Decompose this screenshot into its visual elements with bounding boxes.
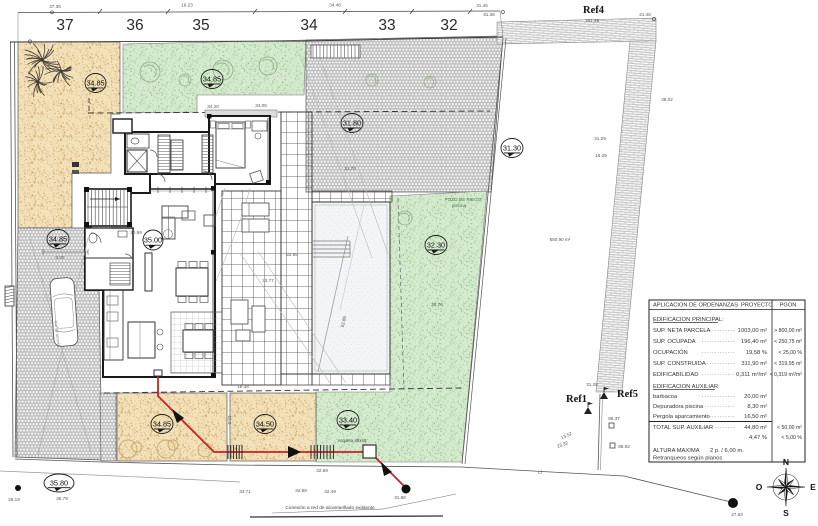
svg-text:31.36: 31.36 — [483, 12, 495, 17]
svg-text:38.02: 38.02 — [661, 97, 673, 102]
svg-text:Ref4: Ref4 — [583, 5, 605, 16]
svg-text:Arqueta 40x40: Arqueta 40x40 — [338, 438, 367, 443]
svg-text:piscina: piscina — [452, 203, 467, 208]
svg-text:SUP. CONSTRUIDA: SUP. CONSTRUIDA — [653, 361, 706, 367]
svg-text:35.79: 35.79 — [56, 496, 68, 501]
svg-text:33.95: 33.95 — [286, 252, 298, 257]
svg-text:31.80: 31.80 — [343, 119, 361, 128]
svg-text:< 25,00 %: < 25,00 % — [778, 350, 802, 356]
svg-text:32: 32 — [440, 17, 457, 34]
svg-text:O: O — [756, 482, 763, 492]
svg-text:< 5,00 %: < 5,00 % — [781, 435, 802, 441]
svg-text:44,80 m²: 44,80 m² — [744, 425, 767, 431]
svg-text:> 800,00 m²: > 800,00 m² — [774, 328, 802, 334]
svg-text:89.37: 89.37 — [608, 416, 620, 421]
svg-text:22.5: 22.5 — [227, 416, 232, 425]
svg-text:161.46: 161.46 — [585, 18, 599, 23]
svg-text:N: N — [783, 457, 789, 467]
svg-text:16,50 m²: 16,50 m² — [744, 414, 767, 420]
svg-text:< 0,319 m²/m²: < 0,319 m²/m² — [770, 372, 803, 378]
svg-text:31.45: 31.45 — [476, 3, 488, 8]
svg-text:37.36: 37.36 — [49, 4, 61, 9]
svg-text:32.98: 32.98 — [295, 488, 307, 493]
svg-text:EDIFICABILIDAD: EDIFICABILIDAD — [653, 372, 698, 378]
svg-text:8,30 m²: 8,30 m² — [747, 404, 767, 410]
svg-text:0,311 m²/m²: 0,311 m²/m² — [736, 372, 767, 378]
svg-text:1003,00 m²: 1003,00 m² — [738, 328, 767, 334]
svg-text:16.29: 16.29 — [595, 153, 607, 158]
svg-text:35.80: 35.80 — [50, 479, 68, 488]
svg-text:37: 37 — [56, 17, 73, 34]
svg-text:Retranqueos según planos: Retranqueos según planos — [653, 456, 722, 462]
svg-text:ALTURA MAXIMA: ALTURA MAXIMA — [653, 448, 700, 454]
svg-text:Pergola aparcamiento: Pergola aparcamiento — [653, 414, 710, 420]
svg-text:E: E — [810, 482, 816, 492]
svg-text:18.38: 18.38 — [237, 384, 249, 389]
svg-text:33.77: 33.77 — [262, 278, 274, 283]
svg-text:Ref5: Ref5 — [617, 389, 638, 400]
svg-text:34.05: 34.05 — [255, 103, 267, 108]
svg-text:TOTAL SUP. AUXILIAR: TOTAL SUP. AUXILIAR — [653, 425, 713, 431]
svg-text:32.69: 32.69 — [316, 468, 328, 473]
svg-text:APLICACION DE ORDENANZAS: APLICACION DE ORDENANZAS — [653, 303, 738, 309]
svg-text:OCUPACIÓN: OCUPACIÓN — [653, 349, 688, 356]
svg-text:196,40 m²: 196,40 m² — [741, 339, 767, 345]
svg-text:33.71: 33.71 — [239, 489, 251, 494]
svg-text:Ref1: Ref1 — [566, 394, 587, 405]
svg-text:S: S — [783, 508, 789, 518]
svg-text:SUP. OCUPADA: SUP. OCUPADA — [653, 339, 696, 345]
svg-text:20,00 m²: 20,00 m² — [744, 394, 767, 400]
svg-text:barbacoa: barbacoa — [653, 394, 678, 400]
svg-text:< 50,00 m²: < 50,00 m² — [777, 425, 802, 431]
svg-text:33.40: 33.40 — [339, 416, 357, 425]
svg-text:< 319,95 m²: < 319,95 m² — [774, 361, 802, 367]
svg-text:34.50: 34.50 — [256, 420, 274, 429]
svg-text:34: 34 — [300, 17, 318, 34]
svg-text:32.49: 32.49 — [324, 489, 336, 494]
svg-text:6.00: 6.00 — [56, 255, 65, 260]
svg-text:31.29: 31.29 — [594, 136, 606, 141]
svg-text:34.85: 34.85 — [153, 420, 171, 429]
svg-text:19,58 %: 19,58 % — [746, 350, 767, 356]
svg-text:Depuradora piscina: Depuradora piscina — [653, 404, 704, 410]
svg-text:21.48: 21.48 — [639, 12, 651, 17]
svg-text:550.90 m²: 550.90 m² — [550, 237, 571, 242]
svg-text:35: 35 — [192, 17, 209, 34]
svg-text:PGON: PGON — [780, 303, 797, 309]
svg-text:EDIFICACION AUXILIAR:: EDIFICACION AUXILIAR: — [653, 384, 720, 390]
svg-text:< 250,75 m²: < 250,75 m² — [774, 339, 802, 345]
svg-text:16.23: 16.23 — [181, 3, 193, 8]
svg-text:26.19: 26.19 — [8, 497, 20, 502]
svg-text:36: 36 — [126, 17, 143, 34]
svg-text:Conexión a red de alcantarilla: Conexión a red de alcantarillado existen… — [285, 505, 375, 511]
svg-text:SUP. NETA PARCELA: SUP. NETA PARCELA — [653, 328, 710, 334]
svg-text:311,90 m²: 311,90 m² — [741, 361, 767, 367]
svg-text:34.85: 34.85 — [203, 75, 221, 84]
svg-text:34.48: 34.48 — [329, 3, 341, 8]
svg-text:27.63: 27.63 — [731, 512, 743, 517]
svg-text:33: 33 — [378, 17, 395, 34]
svg-text:34.76: 34.76 — [431, 302, 443, 307]
svg-text:34.85: 34.85 — [86, 79, 104, 88]
svg-text:31.88: 31.88 — [394, 495, 406, 500]
svg-text:86.92: 86.92 — [618, 444, 630, 449]
svg-text:35.00: 35.00 — [144, 236, 162, 245]
svg-text:31.28: 31.28 — [586, 382, 598, 387]
svg-text:POZO DE RIEGO: POZO DE RIEGO — [445, 197, 482, 202]
svg-text:PROYECTO: PROYECTO — [741, 303, 773, 309]
svg-text:4,47 %: 4,47 % — [749, 435, 767, 441]
svg-text:EDIFICACION PRINCIPAL:: EDIFICACION PRINCIPAL: — [653, 317, 724, 323]
svg-text:34.20: 34.20 — [207, 104, 219, 109]
svg-text:30.69: 30.69 — [130, 230, 142, 235]
svg-text:31.70: 31.70 — [344, 166, 356, 171]
svg-text:34.85: 34.85 — [49, 235, 67, 244]
svg-text:32.30: 32.30 — [427, 241, 445, 250]
svg-text:31.30: 31.30 — [503, 144, 521, 153]
svg-text:2 p. / 6,00 m.: 2 p. / 6,00 m. — [710, 448, 744, 454]
